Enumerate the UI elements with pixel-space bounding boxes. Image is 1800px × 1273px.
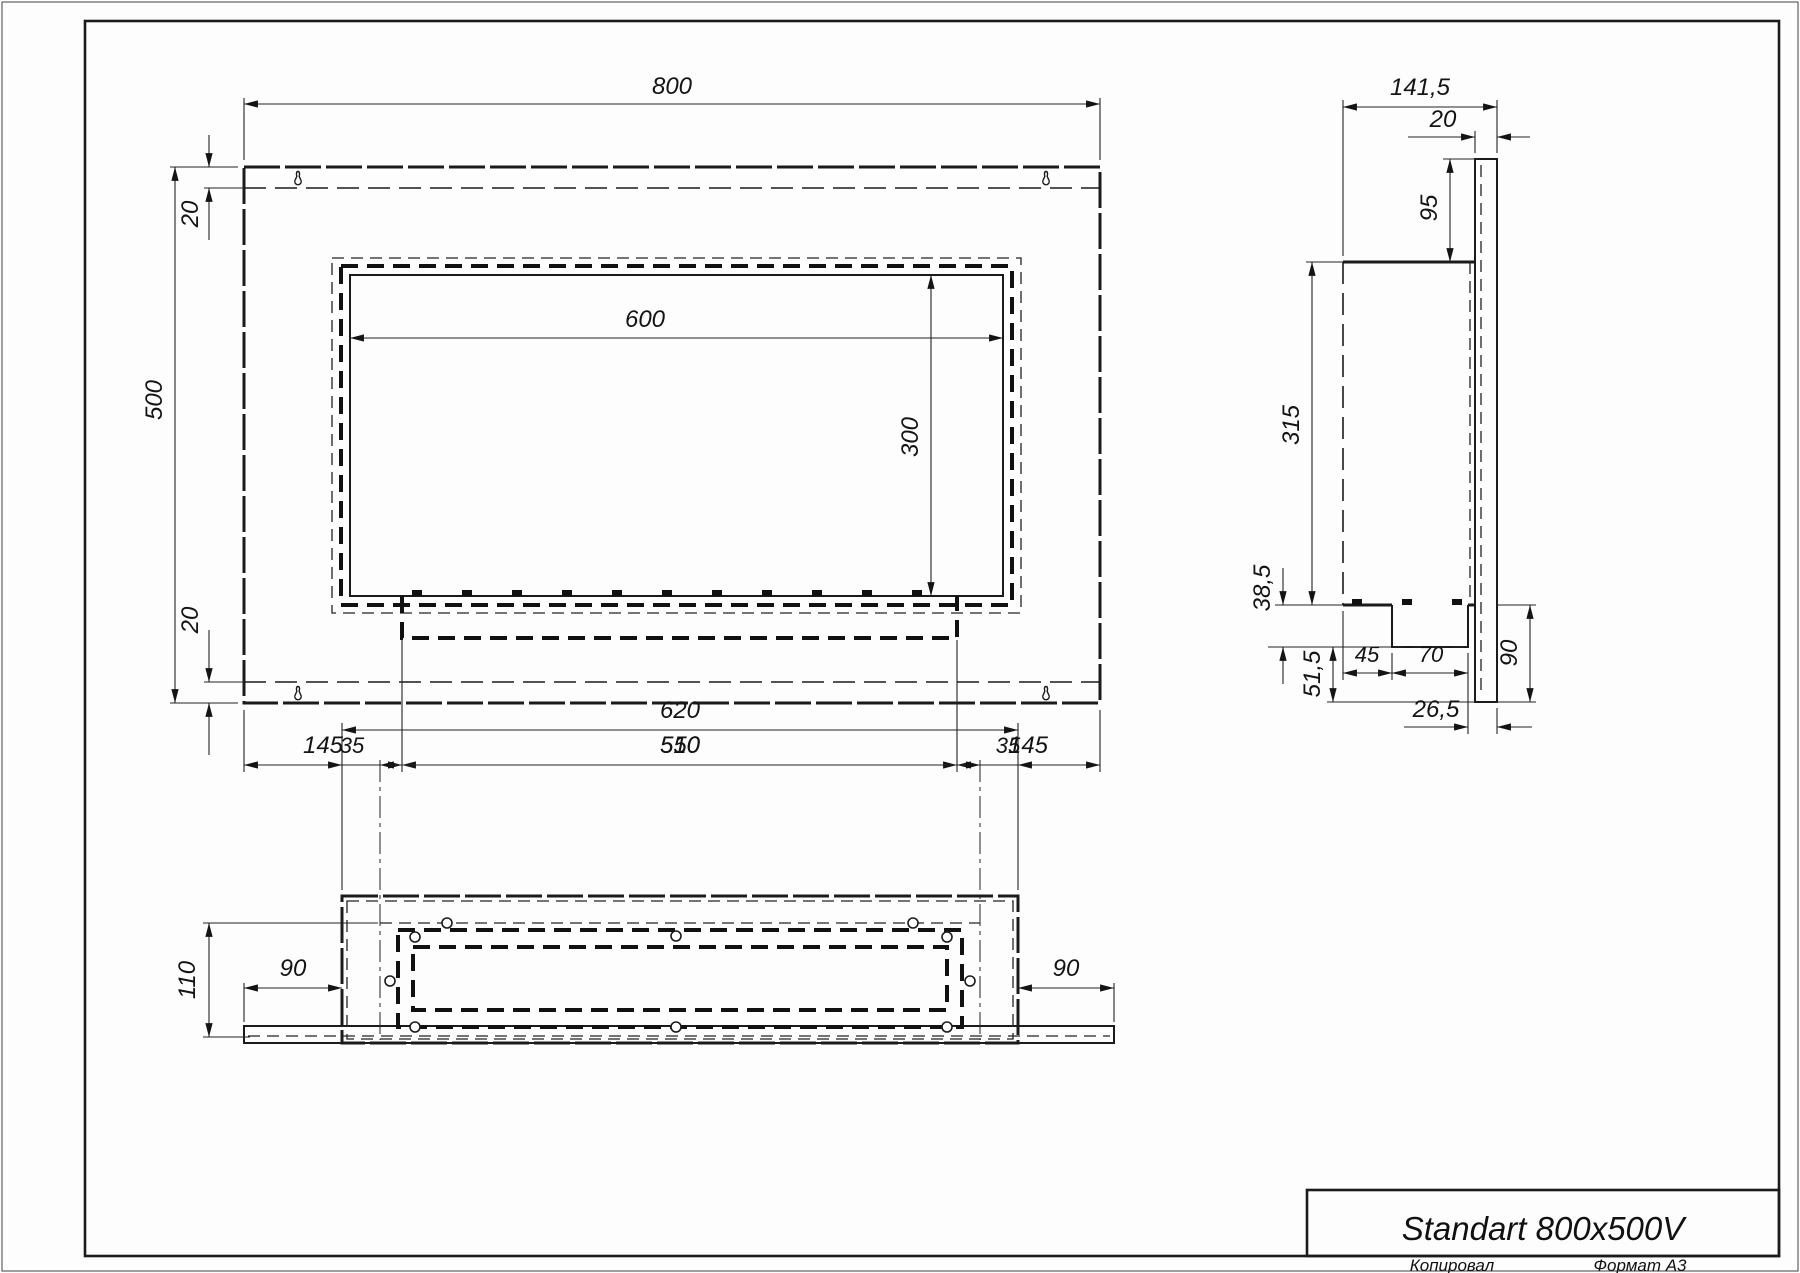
- back-plate-outline: [1475, 159, 1497, 702]
- dim-body-to-tray: 45: [1355, 642, 1380, 667]
- dim-flange-left: 90: [280, 955, 307, 982]
- dim-front-width: 800: [652, 73, 693, 100]
- technical-drawing: 800 500 20 20 600 300 145 510 145: [0, 0, 1800, 1273]
- dim-margin-right: 35: [996, 733, 1021, 758]
- tray-hidden-outline: [402, 596, 957, 638]
- title-block: Standart 800x500V Копировал Формат А3: [1307, 1190, 1779, 1273]
- side-view: 141,5 20 95 315 38,5 51,5 45 70: [1249, 74, 1536, 734]
- dim-flange-right: 90: [1053, 955, 1080, 982]
- dim-side-depth: 141,5: [1390, 74, 1451, 101]
- keyhole-slot-icon: [295, 687, 301, 700]
- dim-plate-thickness: 20: [1429, 106, 1457, 133]
- dim-side-tray-width: 70: [1419, 642, 1444, 667]
- dim-plate-below-body: 90: [1496, 639, 1523, 666]
- dim-left-to-tray: 145: [303, 732, 344, 759]
- copied-label: Копировал: [1410, 1256, 1495, 1273]
- dim-tray-to-plate-bottom: 51,5: [1299, 650, 1326, 697]
- screw-holes: [385, 918, 975, 1032]
- dim-front-height: 500: [141, 379, 168, 420]
- dim-inner-width: 550: [660, 732, 701, 759]
- dim-depth: 110: [174, 960, 201, 999]
- dim-opening-height: 300: [897, 416, 924, 457]
- dim-plate-above-body: 95: [1416, 194, 1443, 221]
- dim-tray-to-back: 26,5: [1412, 696, 1460, 723]
- keyhole-slot-icon: [295, 172, 301, 185]
- keyhole-slot-icon: [1043, 687, 1049, 700]
- drawing-sheet: 800 500 20 20 600 300 145 510 145: [0, 0, 1800, 1273]
- box-outline: [342, 896, 1018, 1043]
- format-label: Формат А3: [1593, 1256, 1687, 1273]
- sheet-frame: [2, 2, 1798, 1271]
- front-view: 800 500 20 20 600 300 145 510 145: [141, 73, 1100, 772]
- dim-front-bottom-gap: 20: [177, 606, 204, 634]
- dim-body-height: 315: [1278, 404, 1305, 445]
- keyhole-slot-icon: [1043, 172, 1049, 185]
- dim-opening-width: 600: [625, 306, 666, 333]
- front-panel-outline: [244, 167, 1100, 703]
- dim-margin-left: 35: [340, 733, 365, 758]
- dim-tray-depth: 38,5: [1249, 564, 1276, 611]
- side-tray-outline: [1392, 605, 1468, 647]
- dim-front-top-gap: 20: [177, 200, 204, 228]
- dim-box-width: 620: [660, 697, 701, 724]
- drawing-title: Standart 800x500V: [1402, 1210, 1688, 1247]
